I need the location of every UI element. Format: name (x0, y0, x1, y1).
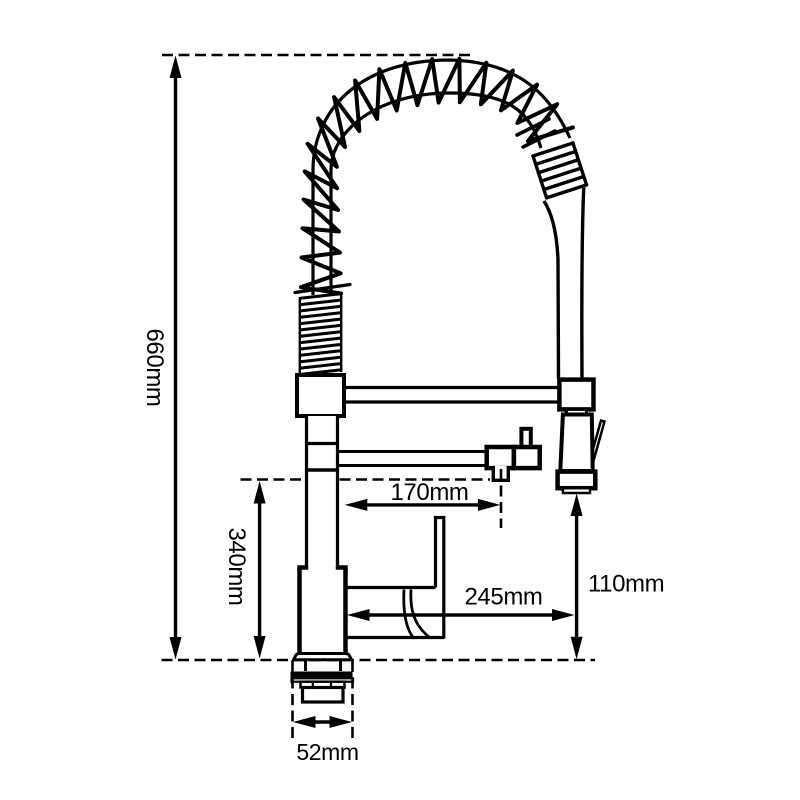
svg-text:245mm: 245mm (464, 584, 542, 611)
svg-text:660mm: 660mm (141, 328, 168, 406)
svg-text:52mm: 52mm (296, 739, 358, 765)
svg-text:340mm: 340mm (223, 527, 250, 605)
svg-text:170mm: 170mm (390, 479, 468, 506)
svg-text:110mm: 110mm (588, 571, 664, 598)
